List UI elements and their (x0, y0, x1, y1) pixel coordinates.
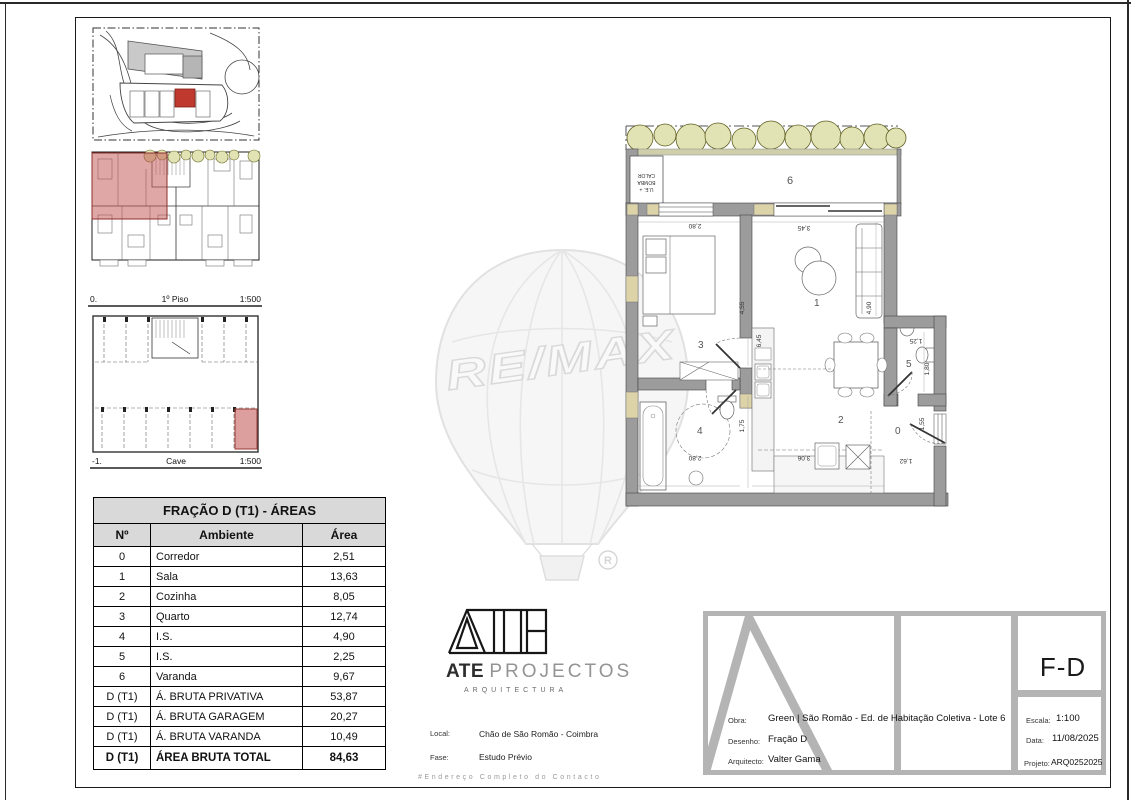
cave-title: Cave (166, 456, 186, 466)
arquitecto-value: Valter Gama (768, 754, 821, 765)
stair-core (152, 318, 198, 358)
piso-level-marker: 0. (90, 294, 97, 304)
table-row: 3Quarto12,74 (94, 607, 386, 627)
bed (643, 236, 715, 326)
table-row: 5I.S.2,25 (94, 647, 386, 667)
titleblock-divider-3 (1018, 690, 1101, 697)
svg-text:3,45: 3,45 (797, 224, 810, 231)
table-row: 4I.S.4,90 (94, 627, 386, 647)
table-row: D (T1)Á. BRUTA PRIVATIVA53,87 (94, 687, 386, 707)
local-label: Local: (430, 729, 450, 738)
room-label-quarto: 3 (698, 340, 704, 351)
col-header-ambiente: Ambiente (151, 524, 303, 547)
escala-value: 1:100 (1056, 713, 1080, 724)
cave-scale: 1:500 (240, 456, 262, 466)
basement-thumbnail: -1. Cave 1:500 (90, 312, 263, 472)
cave-level-marker: -1. (92, 456, 102, 466)
arquitecto-label: Arquitecto: (728, 757, 764, 766)
table-row: 1Sala13,63 (94, 567, 386, 587)
bathtub (640, 402, 666, 490)
desenho-value: Fração D (768, 734, 807, 745)
wardrobe (680, 362, 738, 380)
col-header-no: Nº (94, 524, 151, 547)
data-label: Data: (1026, 736, 1044, 745)
svg-text:6,45: 6,45 (756, 334, 763, 347)
site-plan-thumbnail (90, 25, 262, 143)
ate-name-light: PROJECTOS (489, 661, 632, 682)
sink-is5 (900, 328, 934, 363)
local-value: Chão de São Romão - Coimbra (479, 729, 598, 739)
page-edge-left (5, 2, 6, 800)
obra-value: Green | São Romão - Ed. de Habitação Col… (768, 713, 1005, 724)
floor-plan-detail: U.E. + BOMBA CALOR 6 (618, 116, 954, 518)
balloon-basket (540, 556, 584, 580)
room-label-sala: 1 (814, 298, 820, 309)
svg-text:BOMBA: BOMBA (637, 179, 656, 185)
svg-text:4,55: 4,55 (739, 301, 746, 314)
registered-mark: R (604, 555, 612, 567)
heat-pump-label: U.E. + BOMBA CALOR (637, 172, 656, 192)
areas-table-title: FRAÇÃO D (T1) - ÁREAS (94, 498, 386, 524)
coffee-tables (795, 247, 836, 295)
areas-table-header-row: Nº Ambiente Área (94, 524, 386, 547)
table-row: 6Varanda9,67 (94, 667, 386, 687)
svg-text:CALOR: CALOR (638, 172, 656, 178)
col-header-area: Área (303, 524, 386, 547)
svg-text:1,55: 1,55 (919, 417, 926, 430)
page-edge-right (1127, 0, 1129, 800)
obra-label: Obra: (728, 716, 747, 725)
highlighted-parking-stall (235, 409, 257, 449)
contact-placeholder-note: #Endereço Completo do Contacto (418, 774, 601, 781)
highlighted-lot (175, 89, 195, 107)
data-value: 11/08/2025 (1052, 733, 1099, 744)
piso-scale: 1:500 (240, 294, 262, 304)
titleblock-divider-2 (1011, 616, 1018, 770)
svg-text:1,75: 1,75 (739, 419, 746, 432)
drawing-code: F-D (1020, 652, 1106, 683)
svg-text:1,62: 1,62 (899, 457, 912, 464)
svg-text:1,80: 1,80 (924, 362, 931, 375)
svg-text:2,80: 2,80 (688, 222, 701, 229)
ate-name-bold: ATE (446, 661, 484, 682)
svg-text:1,25: 1,25 (909, 337, 922, 344)
titleblock-divider-1 (894, 616, 901, 770)
svg-text:2,80: 2,80 (688, 454, 701, 461)
svg-text:4,90: 4,90 (866, 301, 873, 314)
fase-value: Estudo Prévio (479, 752, 532, 762)
projeto-value: ARQ0252025 (1051, 757, 1103, 767)
desenho-label: Desenho: (728, 737, 760, 746)
title-block: Obra: Green | São Romão - Ed. de Habitaç… (703, 611, 1106, 775)
drawing-sheet: 0. 1º Piso 1:500 (0, 0, 1131, 800)
first-floor-thumbnail: 0. 1º Piso 1:500 (88, 145, 263, 310)
fraction-d-overlay (92, 153, 167, 219)
ate-triangle-mark (705, 616, 905, 770)
projeto-label: Projeto: (1024, 759, 1050, 768)
table-row: 0Corredor2,51 (94, 547, 386, 567)
room-label-varanda: 6 (787, 175, 793, 187)
table-total-row: D (T1)ÁREA BRUTA TOTAL84,63 (94, 747, 386, 770)
svg-text:U.E. +: U.E. + (639, 186, 653, 192)
piso-title: 1º Piso (162, 294, 189, 304)
room-label-is4: 4 (697, 426, 703, 437)
areas-table: FRAÇÃO D (T1) - ÁREAS Nº Ambiente Área 0… (93, 497, 386, 770)
table-row: D (T1)Á. BRUTA VARANDA10,49 (94, 727, 386, 747)
ate-wordmark: ATE PROJECTOS (446, 661, 632, 683)
table-row: D (T1)Á. BRUTA GARAGEM20,27 (94, 707, 386, 727)
ate-logo (446, 606, 550, 656)
areas-table-title-row: FRAÇÃO D (T1) - ÁREAS (94, 498, 386, 524)
room-label-corredor: 0 (895, 426, 901, 437)
table-row: 2Cozinha8,05 (94, 587, 386, 607)
room-label-is5: 5 (906, 359, 912, 370)
page-edge-top (0, 2, 1131, 4)
escala-label: Escala: (1026, 716, 1051, 725)
dining-table (825, 333, 887, 397)
svg-text:3,06: 3,06 (797, 454, 810, 461)
fase-label: Fase: (430, 753, 449, 762)
ate-subtitle: ARQUITECTURA (464, 687, 567, 694)
room-label-cozinha: 2 (838, 415, 844, 426)
